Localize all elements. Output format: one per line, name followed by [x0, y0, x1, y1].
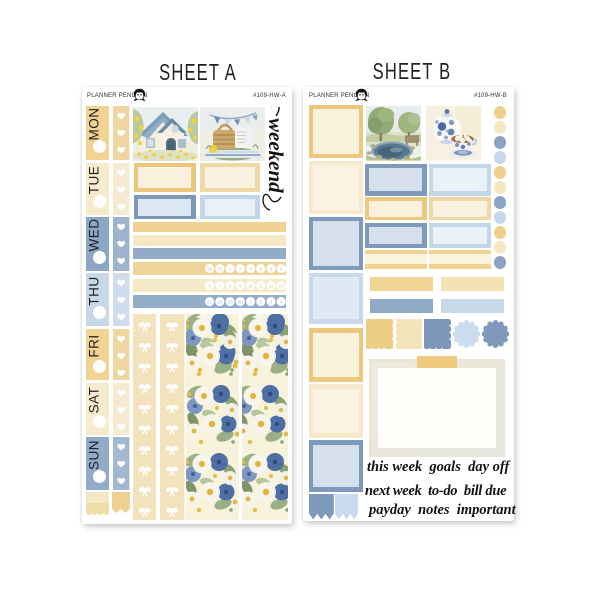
- svg-text:2: 2: [259, 299, 262, 304]
- svg-text:4: 4: [280, 299, 283, 304]
- svg-text:28: 28: [217, 299, 223, 304]
- svg-text:13: 13: [279, 283, 285, 288]
- svg-text:10: 10: [248, 283, 254, 288]
- svg-text:11: 11: [258, 283, 263, 288]
- svg-text:7: 7: [219, 283, 222, 288]
- svg-text:27: 27: [207, 299, 213, 304]
- svg-text:30: 30: [238, 299, 244, 304]
- svg-text:weekend: weekend: [264, 118, 286, 193]
- svg-text:31: 31: [217, 266, 223, 271]
- svg-text:29: 29: [228, 299, 234, 304]
- svg-text:12: 12: [268, 283, 274, 288]
- svg-text:9: 9: [239, 283, 242, 288]
- svg-text:2: 2: [239, 266, 242, 271]
- svg-text:6: 6: [280, 266, 283, 271]
- svg-text:4: 4: [259, 266, 262, 271]
- svg-text:30: 30: [207, 266, 213, 271]
